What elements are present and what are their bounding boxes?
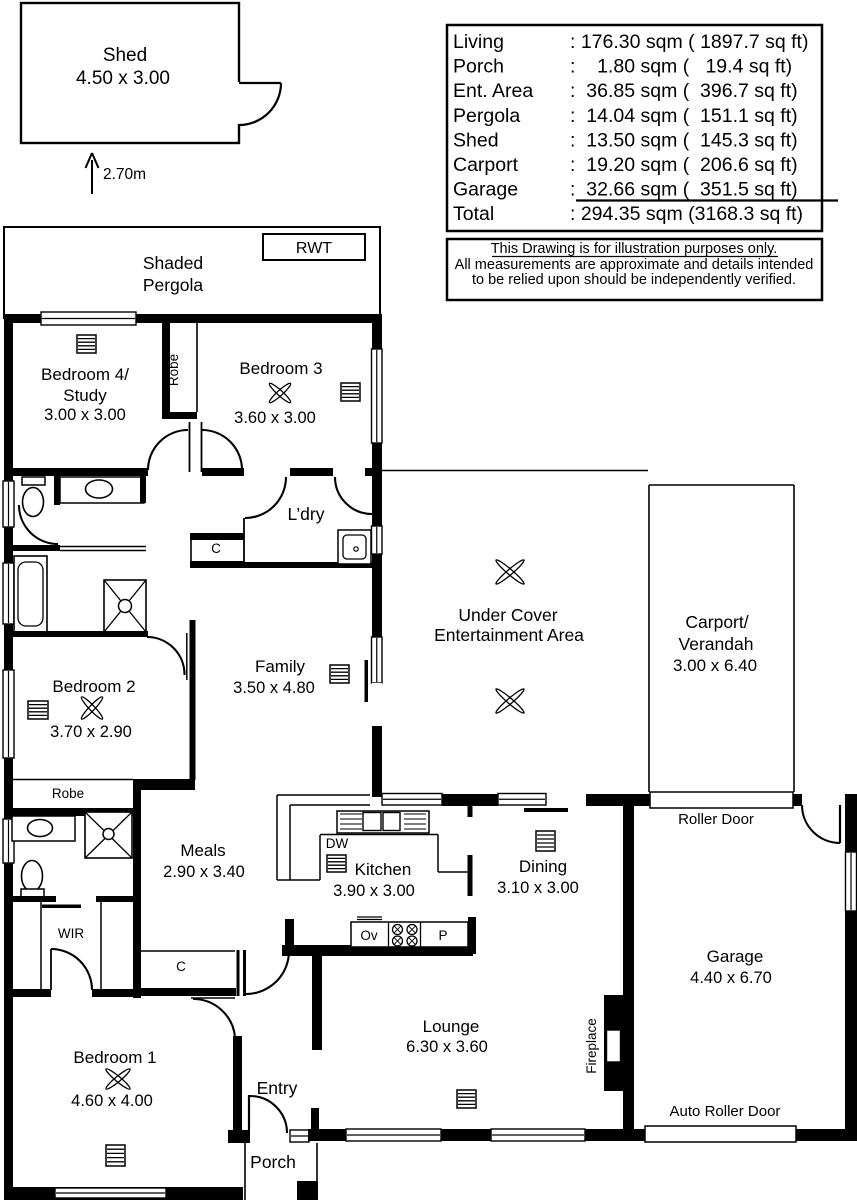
svg-text:Robe: Robe [52,786,84,801]
svg-text:: 176.30 sqm ( 1897.7 sq ft): : 176.30 sqm ( 1897.7 sq ft) [570,31,808,53]
svg-text:L’dry: L’dry [288,504,325,524]
svg-text:Pergola: Pergola [453,105,520,127]
svg-text:: 36.85 sqm ( 396.7 sq ft): : 36.85 sqm ( 396.7 sq ft) [570,80,798,102]
svg-text:Fireplace: Fireplace [584,1018,599,1074]
svg-text:Lounge: Lounge [423,1017,480,1036]
svg-text:Carport/: Carport/ [685,612,748,632]
svg-text:Bedroom 1: Bedroom 1 [73,1048,156,1067]
svg-text:Garage: Garage [453,179,518,201]
svg-text:Ov: Ov [360,928,378,943]
svg-text:Study: Study [63,386,107,405]
svg-text:Roller Door: Roller Door [678,811,754,828]
svg-text:Entry: Entry [257,1078,298,1098]
svg-text:Shed: Shed [103,45,147,66]
svg-text:C: C [211,541,221,556]
svg-text:3.00 x 3.00: 3.00 x 3.00 [44,406,126,424]
svg-text:Total: Total [453,203,494,225]
svg-text:3.10 x 3.00: 3.10 x 3.00 [497,879,579,897]
svg-text:Porch: Porch [453,56,504,78]
svg-text:Bedroom 2: Bedroom 2 [52,677,135,696]
svg-text:: 14.04 sqm ( 151.1 sq ft): : 14.04 sqm ( 151.1 sq ft) [570,105,798,127]
svg-text:3.90 x 3.00: 3.90 x 3.00 [333,882,415,900]
svg-text:: 19.20 sqm ( 206.6 sq ft): : 19.20 sqm ( 206.6 sq ft) [570,154,798,176]
svg-text:Family: Family [255,657,306,676]
svg-text:4.60 x 4.00: 4.60 x 4.00 [71,1092,153,1110]
svg-text:Carport: Carport [453,154,519,176]
svg-text:Robe: Robe [166,354,181,386]
svg-text:Kitchen: Kitchen [355,860,412,879]
svg-text:C: C [176,959,186,974]
svg-text:2.90 x 3.40: 2.90 x 3.40 [163,863,245,881]
svg-text:: 32.66 sqm ( 351.5 sq ft): : 32.66 sqm ( 351.5 sq ft) [570,179,798,201]
svg-text:Under Cover: Under Cover [458,605,557,625]
svg-text:Living: Living [453,31,504,53]
svg-text:Pergola: Pergola [143,275,204,295]
svg-text:2.70m: 2.70m [103,166,146,183]
svg-text:Entertainment Area: Entertainment Area [434,625,584,645]
svg-text:: 294.35 sqm (3168.3 sq ft): : 294.35 sqm (3168.3 sq ft) [570,203,803,225]
svg-text:Dining: Dining [519,857,567,876]
svg-text:3.60 x 3.00: 3.60 x 3.00 [234,409,316,427]
svg-text:Shed: Shed [453,129,499,151]
svg-text:to be relied upon should be in: to be relied upon should be independentl… [472,272,796,288]
svg-text:This Drawing is for illustrati: This Drawing is for illustration purpose… [491,241,778,257]
svg-text:4.40 x 6.70: 4.40 x 6.70 [690,969,772,987]
svg-text:P: P [438,928,447,943]
svg-text:Shaded: Shaded [143,253,203,273]
svg-text:All measurements are approxima: All measurements are approximate and det… [455,257,814,273]
svg-text:Meals: Meals [180,841,225,860]
svg-text:4.50 x 3.00: 4.50 x 3.00 [76,68,170,89]
svg-text:: 13.50 sqm ( 145.3 sq ft): : 13.50 sqm ( 145.3 sq ft) [570,129,798,151]
svg-text:Garage: Garage [707,947,764,966]
svg-text:6.30 x 3.60: 6.30 x 3.60 [406,1038,488,1056]
svg-text:Ent. Area: Ent. Area [453,80,533,102]
svg-text:WIR: WIR [58,926,84,941]
svg-text:Auto Roller Door: Auto Roller Door [670,1103,781,1120]
svg-text:Verandah: Verandah [679,634,754,654]
svg-text:DW: DW [326,836,349,851]
svg-text:Porch: Porch [250,1152,296,1172]
svg-text:3.00 x 6.40: 3.00 x 6.40 [673,656,757,675]
svg-text:Bedroom 4/: Bedroom 4/ [41,365,129,384]
svg-text:Bedroom 3: Bedroom 3 [239,359,322,378]
svg-text:: 1.80 sqm ( 19.4 sq ft): : 1.80 sqm ( 19.4 sq ft) [570,56,792,78]
svg-text:RWT: RWT [296,240,332,257]
svg-text:3.50 x 4.80: 3.50 x 4.80 [233,679,315,697]
svg-text:3.70 x 2.90: 3.70 x 2.90 [50,723,132,741]
